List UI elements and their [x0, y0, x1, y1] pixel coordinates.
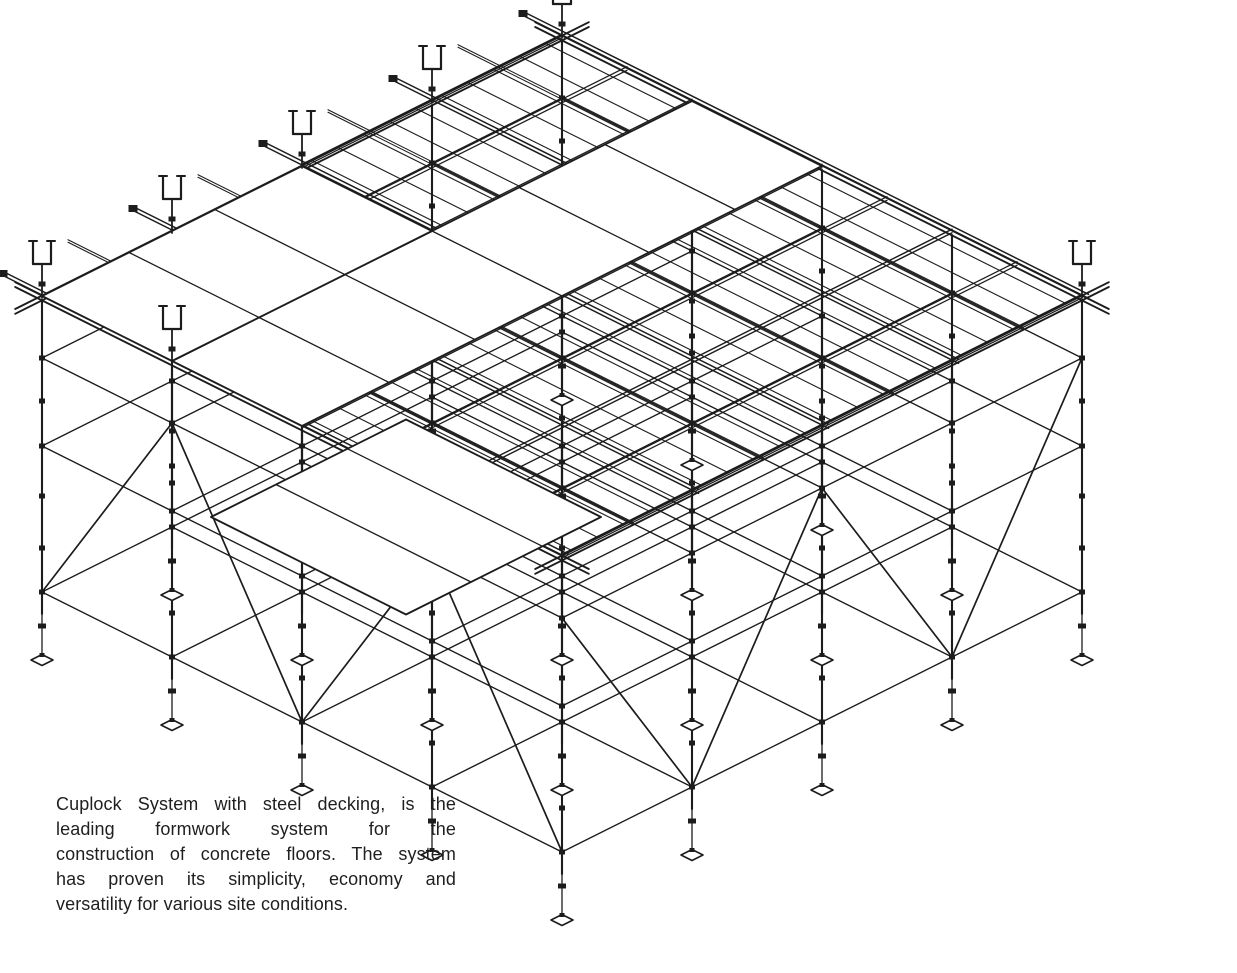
caption-line-3: construction of concrete floors. The sys…	[56, 842, 456, 867]
caption-line-4: has proven its simplicity, economy and	[56, 867, 456, 892]
caption: Cuplock System with steel decking, is th…	[56, 792, 456, 917]
caption-line-1: Cuplock System with steel decking, is th…	[56, 792, 456, 817]
caption-line-2: leading formwork system for the	[56, 817, 456, 842]
caption-line-5: versatility for various site conditions.	[56, 892, 456, 917]
page: Cuplock System with steel decking, is th…	[0, 0, 1237, 973]
